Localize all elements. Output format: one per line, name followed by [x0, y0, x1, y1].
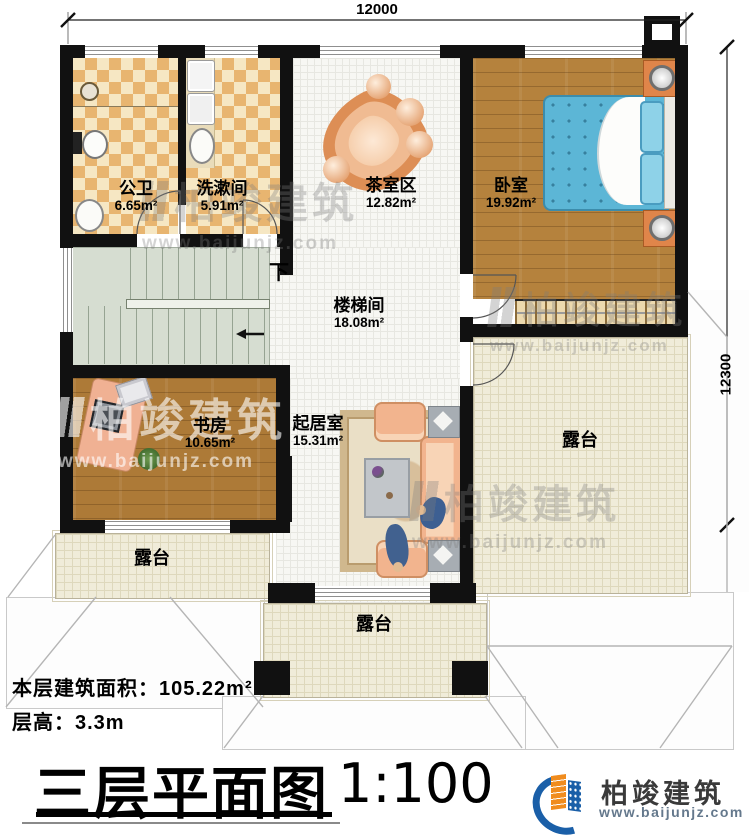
brand-website: www.baijunjz.com	[599, 804, 744, 820]
bed-pillow-1	[640, 101, 664, 153]
stair-down-label: 下	[266, 262, 292, 284]
stair-upper-flight	[130, 248, 268, 302]
plan-title: 三层平面图	[34, 748, 329, 830]
shower-head	[80, 82, 99, 101]
roof-bottom	[222, 696, 526, 750]
pillar-right	[452, 661, 488, 695]
coffee-table-cup	[386, 492, 393, 499]
window-top-4	[525, 45, 642, 58]
stair-center-rail	[126, 299, 270, 309]
washroom-label: 洗漱间 5.91m²	[172, 179, 272, 213]
building-area-value: 105.22m²	[159, 678, 253, 700]
terrace-bottom-label: 露台	[346, 614, 402, 634]
watermark-url-text: www.baijunjz.com	[142, 233, 358, 255]
watermark-4: 柏竣建筑 www.baijunjz.com	[412, 472, 620, 554]
washroom-sink	[189, 128, 215, 164]
wall	[60, 45, 73, 248]
wall	[440, 45, 525, 58]
building-area-label: 本层建筑面积：	[12, 678, 159, 700]
window-top-1	[85, 45, 158, 58]
washing-machine-1	[187, 60, 215, 92]
watermark-url-text: www.baijunjz.com	[490, 336, 686, 356]
floor-height-label: 层高：	[12, 712, 75, 734]
bedroom-label: 卧室 19.92m²	[461, 176, 561, 210]
watermark-building-icon	[487, 287, 519, 327]
window-left-stairs	[60, 248, 73, 332]
sliding-door-living	[315, 586, 430, 600]
bathroom-label: 公卫 6.65m²	[86, 179, 186, 213]
watermark-url-text: www.baijunjz.com	[58, 451, 286, 473]
building-area-line: 本层建筑面积：105.22m²	[12, 672, 253, 701]
nightstand-lamp-2	[649, 215, 675, 241]
wall	[268, 583, 315, 603]
terrace-right-floor	[473, 337, 688, 594]
terrace-left-label: 露台	[124, 548, 180, 568]
wall	[60, 520, 105, 533]
plan-scale: 1:100	[338, 752, 494, 815]
window-top-3	[320, 45, 440, 58]
tea-stone-1	[366, 74, 391, 99]
shower-line	[73, 106, 178, 107]
coffee-table-flowers	[372, 466, 384, 478]
watermark-building-icon	[55, 397, 87, 437]
washing-machine-2	[187, 93, 215, 125]
watermark-building-icon	[409, 481, 441, 521]
title-underline-thick	[36, 812, 332, 817]
floor-height-line: 层高：3.3m	[12, 706, 125, 735]
window-study-south	[105, 520, 230, 533]
chimney	[644, 16, 680, 48]
toilet-tank	[73, 132, 82, 154]
wall-study-top	[60, 365, 290, 378]
armchair-top	[374, 402, 426, 442]
tea-stone-2	[396, 98, 424, 126]
tea-stone-3	[406, 131, 433, 158]
watermark-brand-text: 柏竣建筑	[522, 280, 686, 334]
terrace-right-label: 露台	[552, 430, 608, 450]
watermark-2: 柏竣建筑 www.baijunjz.com	[490, 280, 686, 356]
watermark-url-text: www.baijunjz.com	[412, 532, 620, 554]
floor-height-value: 3.3m	[75, 712, 125, 734]
tea-area-label: 茶室区 12.82m²	[341, 176, 441, 210]
logo-building-orange	[551, 774, 566, 810]
pillar-left	[254, 661, 290, 695]
title-underline-thin	[22, 822, 340, 824]
stair-lower-flight	[88, 306, 268, 364]
dimension-height: 12300	[718, 335, 735, 415]
nightstand-lamp-1	[649, 65, 675, 91]
living-room-label: 起居室 15.31m²	[268, 414, 368, 448]
dimension-width: 12000	[337, 1, 417, 18]
study-label: 书房 10.65m²	[160, 416, 260, 450]
toilet-bowl	[82, 130, 108, 159]
brand-logo	[532, 768, 594, 826]
wall	[230, 520, 290, 533]
logo-building-blue	[568, 780, 581, 812]
window-top-2	[205, 45, 258, 58]
wall	[60, 234, 137, 247]
wall-bedroom-left	[460, 58, 473, 274]
bed-pillow-2	[640, 153, 664, 205]
stairwell-label: 楼梯间 18.08m²	[309, 296, 409, 330]
coffee-table	[364, 458, 410, 518]
wall	[430, 583, 476, 603]
wall	[158, 45, 205, 58]
person-sitting-2-head	[393, 562, 403, 572]
watermark-brand-text: 柏竣建筑	[444, 472, 620, 530]
floor-plan-canvas: 柏竣建筑 www.baijunjz.com 柏竣建筑 www.baijunjz.…	[0, 0, 750, 835]
